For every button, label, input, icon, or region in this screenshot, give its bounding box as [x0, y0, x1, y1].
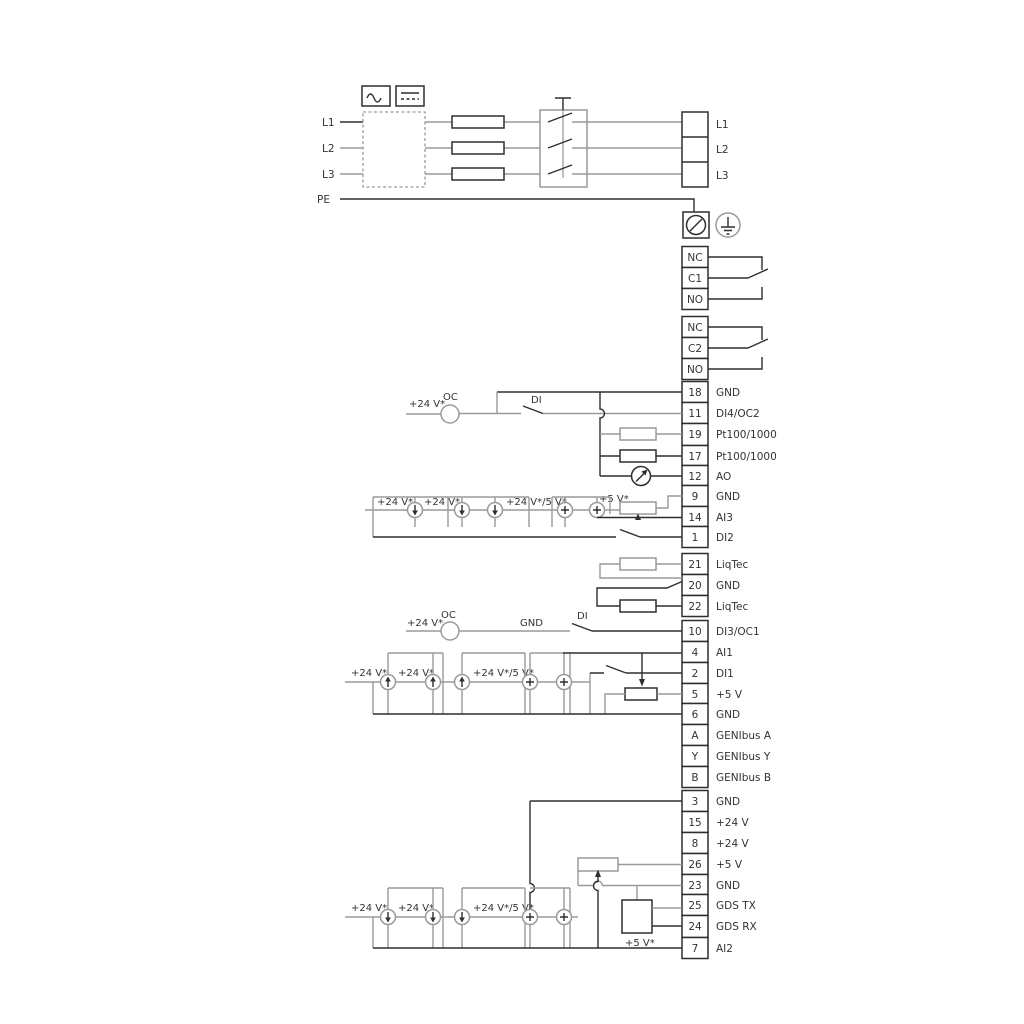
pot-wiper-arrow-down: [639, 679, 645, 687]
relay1-section: NC C1 NO: [682, 247, 768, 310]
terminal-num: 23: [688, 880, 701, 892]
current-source-icon: [408, 503, 423, 518]
input-label-l1: L1: [322, 117, 335, 129]
terminal-label: +5 V: [716, 859, 743, 871]
fuse-l1: [452, 116, 504, 128]
rcd-type-ac-symbol-box: [362, 86, 390, 106]
gnd3-vertical: [530, 801, 535, 910]
terminal-label: DI3/OC1: [716, 626, 760, 638]
terminal-label: +5 V: [716, 689, 743, 701]
terminal-label: Pt100/1000: [716, 429, 777, 441]
terminal-label: +24 V: [716, 838, 749, 850]
terminal-num: 10: [688, 626, 701, 638]
current-source-icon: [426, 675, 441, 690]
gds-ai2-section: +24 V* +24 V* +24 V*/5 V* +5 V*: [345, 801, 682, 949]
fuse-l2: [452, 142, 504, 154]
di3-oc1-section: +24 V* OC GND DI: [406, 610, 682, 640]
label-24v: +24 V*: [407, 618, 443, 629]
ai3-rail-legs: [448, 497, 610, 527]
pt100-sensor-19: [620, 428, 656, 440]
terminal-num: 17: [688, 451, 701, 463]
pt100-sensor-17: [620, 450, 656, 462]
terminal-num: B: [691, 772, 698, 784]
label-di: DI: [577, 611, 588, 622]
wire-pot-to-gnd9: [656, 496, 682, 508]
di1-switch-blade: [606, 666, 626, 674]
relay1-no-label: NO: [687, 294, 703, 306]
relay1-contact-blade: [748, 269, 768, 278]
terminal-num: 15: [688, 817, 701, 829]
terminal-num: 19: [688, 429, 701, 441]
liqtec-section: [597, 558, 682, 612]
label-24v: +24 V*: [409, 399, 445, 410]
terminal-num: 25: [688, 900, 701, 912]
relay2-nc-label: NC: [687, 322, 702, 334]
relay2-contact-blade: [748, 339, 768, 348]
label-oc: OC: [441, 610, 456, 621]
label-oc: OC: [443, 392, 458, 403]
label-di: DI: [531, 395, 542, 406]
gds-sensor-box: [622, 900, 652, 933]
terminal-label: GDS TX: [716, 900, 756, 912]
wire-pe: [340, 199, 694, 212]
terminal-num: 24: [688, 921, 702, 933]
di4-pt100-ao-section: +24 V* OC DI: [406, 392, 682, 486]
terminal-label: AI1: [716, 647, 733, 659]
wires-switch-to-terminals: [572, 122, 682, 174]
mains-terminal-block: [682, 112, 708, 187]
terminal-num: 20: [688, 580, 701, 592]
terminal-label: GND: [716, 580, 740, 592]
terminal-label: GDS RX: [716, 921, 757, 933]
terminal-num: 21: [688, 559, 701, 571]
open-collector-icon: [441, 622, 459, 640]
relay2-wires: [708, 327, 762, 369]
terminal-label: DI4/OC2: [716, 408, 760, 420]
terminal-num: 9: [692, 491, 699, 503]
terminal-label: GND: [716, 709, 740, 721]
di4-switch-blade: [523, 406, 543, 414]
terminal-label: +24 V: [716, 817, 749, 829]
relay1-nc-label: NC: [687, 252, 702, 264]
terminal-label: AI2: [716, 943, 733, 955]
wiring-diagram: L1 L2 L3 PE L1 L2 L3: [0, 0, 1024, 1024]
liqtec-sensor-22: [620, 600, 656, 612]
di2-switch-blade: [620, 530, 640, 538]
rcd-type-dc-symbol-box: [396, 86, 424, 106]
current-source-icon: [488, 503, 503, 518]
terminal-label: AI3: [716, 512, 733, 524]
terminal-num: 18: [688, 387, 701, 399]
input-label-l3: L3: [322, 169, 335, 181]
current-source-icon: [455, 675, 470, 690]
label-gnd: GND: [520, 618, 543, 629]
terminal-num: 4: [692, 647, 699, 659]
mains-input-section: L1 L2 L3 PE L1 L2 L3: [317, 86, 740, 238]
potentiometer-ai1: [625, 688, 657, 700]
terminal-num: 6: [692, 709, 699, 721]
voltage-source-icon: [523, 910, 538, 925]
liqtec-sensor-21: [620, 558, 656, 570]
potentiometer-ai3: [620, 502, 656, 514]
voltage-source-icon: [558, 503, 573, 518]
terminal-num: 7: [692, 943, 699, 955]
terminal-label: Pt100/1000: [716, 451, 777, 463]
voltage-source-icon: [557, 910, 572, 925]
input-label-l2: L2: [322, 143, 335, 155]
terminal-label: GND: [716, 880, 740, 892]
potentiometer-ai2: [578, 858, 618, 871]
terminal-num: 5: [692, 689, 699, 701]
terminal-label: LiqTec: [716, 601, 749, 613]
rcd-box: [363, 112, 425, 187]
terminal-num: 14: [688, 512, 702, 524]
terminal-num: Y: [691, 751, 699, 763]
terminal-label: GND: [716, 796, 740, 808]
terminal-num: 3: [692, 796, 699, 808]
current-source-icon: [455, 503, 470, 518]
terminal-label: GND: [716, 491, 740, 503]
relay1-wires: [708, 257, 762, 299]
relay1-c1-label: C1: [688, 273, 702, 285]
ai1-di1-section: +24 V* +24 V* +24 V*/5 V*: [345, 653, 682, 714]
output-label-l1: L1: [716, 119, 729, 131]
ai1-rail-legs: [388, 653, 570, 714]
input-label-pe: PE: [317, 194, 330, 206]
output-label-l2: L2: [716, 144, 729, 156]
terminal-strip: 18GND 11DI4/OC2 19Pt100/1000 17Pt100/100…: [682, 382, 777, 959]
terminal-label: GENIbus A: [716, 730, 772, 742]
output-label-l3: L3: [716, 170, 729, 182]
terminal-num: 26: [688, 859, 702, 871]
ai3-di2-section: +24 V* +24 V* +24 V*/5 V* +5 V*: [365, 494, 682, 537]
voltage-source-icon: [590, 503, 605, 518]
open-collector-icon: [441, 405, 459, 423]
terminal-label: LiqTec: [716, 559, 749, 571]
relay2-section: NC C2 NO: [682, 317, 768, 380]
terminal-num: 2: [692, 668, 699, 680]
terminal-label: GENIbus Y: [716, 751, 771, 763]
terminal-label: DI2: [716, 532, 734, 544]
fuse-l3: [452, 168, 504, 180]
voltage-source-icon: [523, 675, 538, 690]
voltage-source-icon: [557, 675, 572, 690]
terminal-num: 8: [692, 838, 699, 850]
terminal-label: GENIbus B: [716, 772, 771, 784]
relay2-no-label: NO: [687, 364, 703, 376]
ai2-wiper-shaft: [594, 877, 599, 949]
terminal-num: A: [691, 730, 699, 742]
terminal-num: 12: [688, 471, 701, 483]
terminal-label: DI1: [716, 668, 734, 680]
main-switch-handle: [555, 98, 571, 110]
terminal-num: 22: [688, 601, 701, 613]
current-source-icon: [426, 910, 441, 925]
terminal-num: 1: [692, 532, 699, 544]
terminal-label: GND: [716, 387, 740, 399]
current-source-icon: [455, 910, 470, 925]
terminal-num: 11: [688, 408, 701, 420]
current-source-icon: [381, 910, 396, 925]
wiring-diagram-page: L1 L2 L3 PE L1 L2 L3: [0, 0, 1024, 1024]
di3-switch-blade: [572, 624, 592, 632]
current-source-icon: [381, 675, 396, 690]
relay2-c2-label: C2: [688, 343, 702, 355]
terminal-label: AO: [716, 471, 731, 483]
